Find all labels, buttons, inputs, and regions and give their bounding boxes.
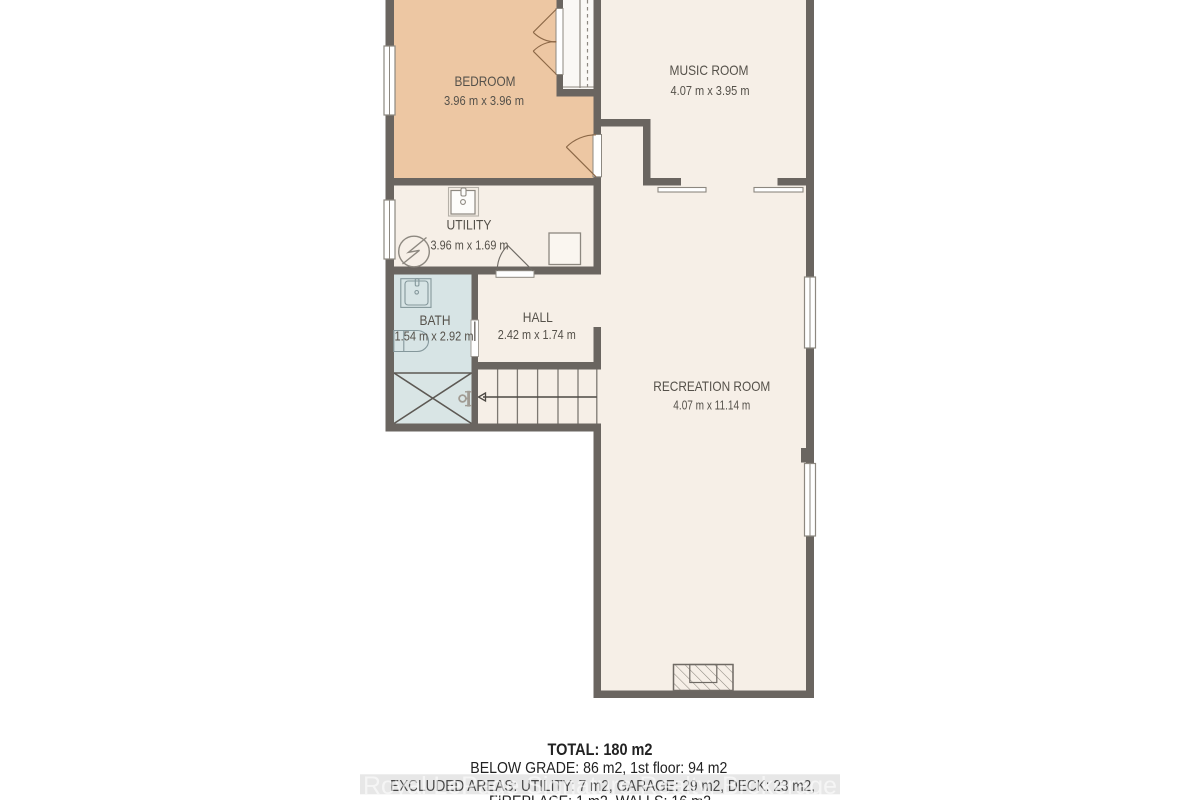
svg-text:RECREATION ROOM: RECREATION ROOM (653, 378, 770, 394)
svg-text:HALL: HALL (523, 310, 553, 325)
svg-text:1.54 m x 2.92 m: 1.54 m x 2.92 m (395, 329, 474, 344)
svg-text:3.96 m x 3.96 m: 3.96 m x 3.96 m (444, 93, 524, 108)
svg-text:MUSIC ROOM: MUSIC ROOM (670, 62, 749, 78)
svg-text:2.42 m x 1.74 m: 2.42 m x 1.74 m (498, 327, 576, 342)
svg-text:3.96 m x 1.69 m: 3.96 m x 1.69 m (431, 238, 509, 253)
svg-text:BATH: BATH (420, 313, 451, 328)
svg-text:BEDROOM: BEDROOM (455, 73, 516, 89)
svg-text:4.07 m x 11.14 m: 4.07 m x 11.14 m (673, 398, 750, 413)
svg-text:4.07 m x 3.95 m: 4.07 m x 3.95 m (671, 83, 750, 98)
svg-text:Royal LePage Signature Realty,: Royal LePage Signature Realty, Brokerage (363, 772, 837, 800)
svg-text:UTILITY: UTILITY (447, 218, 492, 233)
svg-text:TOTAL: 180 m2: TOTAL: 180 m2 (548, 740, 653, 759)
